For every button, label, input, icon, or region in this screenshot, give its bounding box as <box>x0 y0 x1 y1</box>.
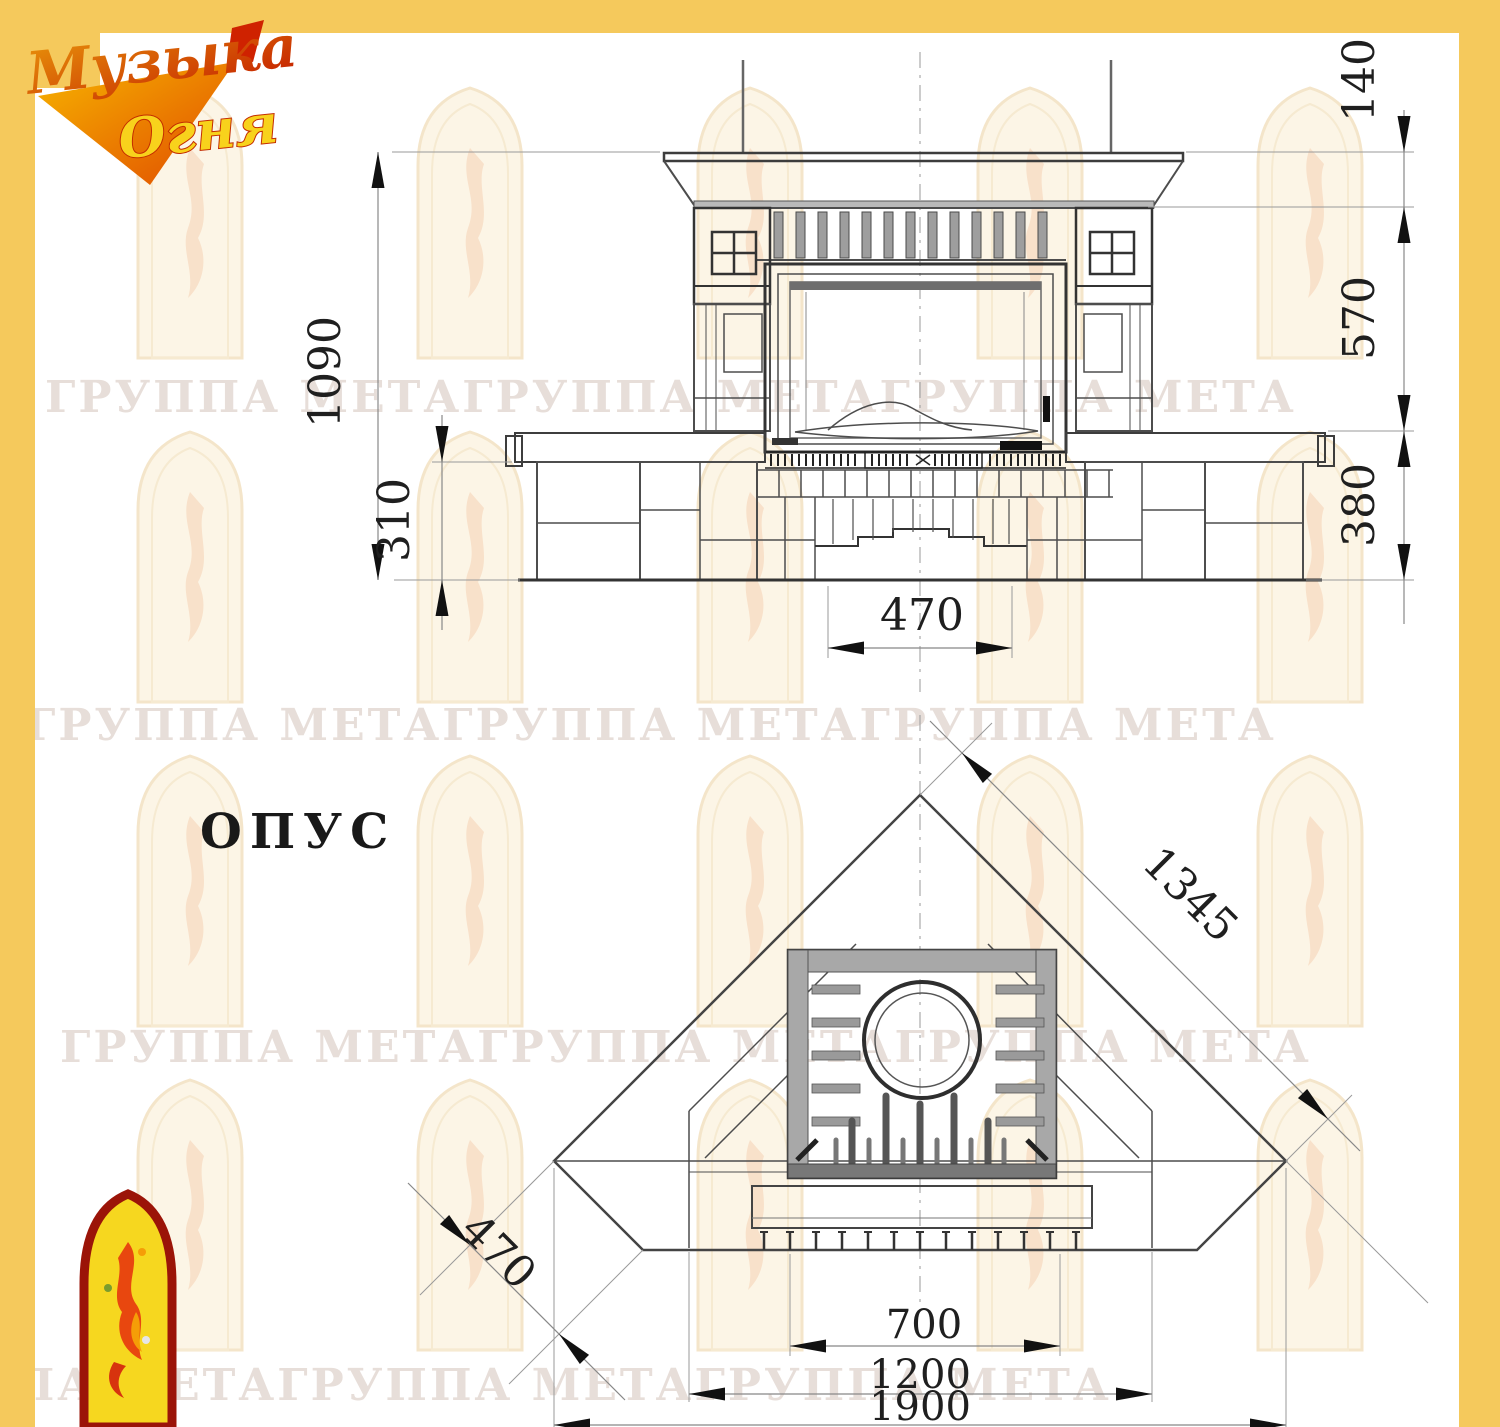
dim-total-height: 1090 <box>300 316 351 428</box>
blueprint-canvas: ГРУППА МЕТАГРУППА МЕТАГРУППА МЕТА ГРУППА… <box>0 0 1500 1427</box>
dim-bench-height: 380 <box>1334 463 1385 547</box>
stained-window-icon <box>84 1194 172 1427</box>
model-name-label: ОПУС <box>200 804 396 860</box>
drawing-sheet: ГРУППА МЕТАГРУППА МЕТАГРУППА МЕТА ГРУППА… <box>0 0 1500 1427</box>
dim-middle-height: 570 <box>1334 276 1385 360</box>
door-handle <box>1043 396 1050 422</box>
dim-firebox-width: 700 <box>886 1302 962 1348</box>
frame-left-band <box>0 0 35 1427</box>
watermark-text-row: ГРУППА МЕТАГРУППА МЕТАГРУППА МЕТА <box>25 700 1277 751</box>
dim-niche-width: 470 <box>880 590 964 641</box>
dim-cornice-height: 140 <box>1334 38 1385 122</box>
dim-overall-width: 1900 <box>869 1384 971 1427</box>
dim-plinth-height: 310 <box>369 478 420 562</box>
frame-right-band <box>1459 0 1500 1427</box>
